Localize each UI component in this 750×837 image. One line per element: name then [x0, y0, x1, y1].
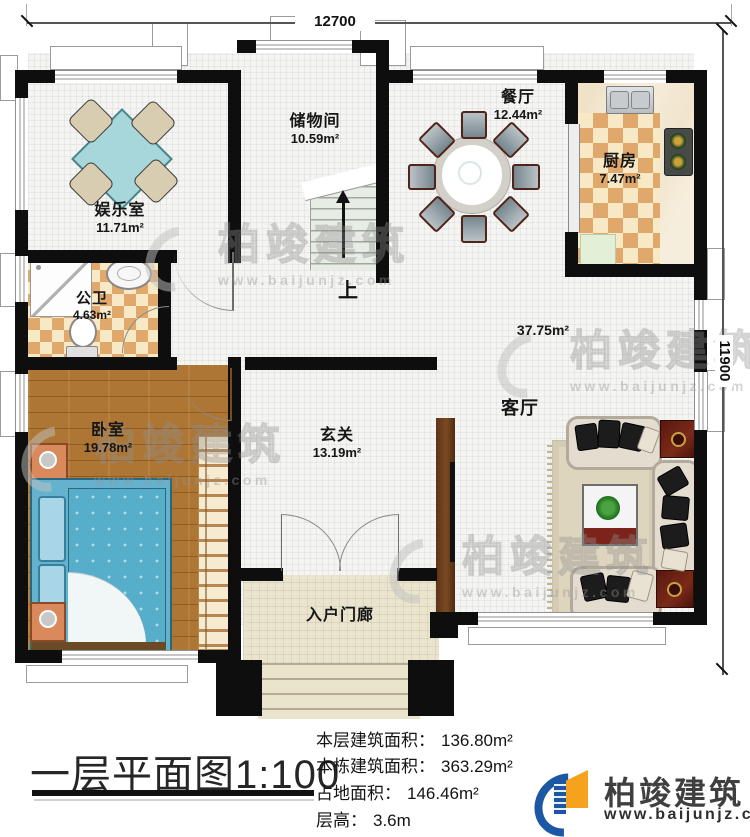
sofa-cushion — [660, 548, 688, 572]
room-area: 37.75m² — [498, 322, 588, 339]
window-sill — [468, 627, 666, 645]
stair-arrow-stem — [342, 202, 345, 258]
wall-segment — [397, 568, 437, 581]
bed-frame — [32, 642, 166, 650]
porch-pillar — [216, 660, 262, 716]
title-underline — [32, 790, 314, 796]
room-label-entertainment: 娱乐室 11.71m² — [60, 201, 180, 236]
dimension-line-top — [27, 22, 732, 24]
info-floor-height: 层高：3.6m — [316, 806, 411, 831]
window — [694, 300, 707, 330]
sofa-cushion — [574, 423, 599, 452]
room-label-bathroom: 公卫 4.63m² — [50, 290, 134, 322]
room-label-living: 客厅 — [478, 398, 562, 420]
room-name: 卧室 — [48, 421, 168, 440]
pillow — [38, 496, 66, 562]
wall-segment — [15, 250, 177, 263]
floor-plan-canvas: 娱乐室 11.71m² 储物间 10.59m² 餐厅 12.44m² 厨房 7.… — [0, 0, 750, 837]
room-label-foyer: 玄关 13.19m² — [277, 426, 397, 461]
room-name: 入户门廊 — [285, 606, 395, 625]
wall-segment — [245, 357, 437, 370]
dining-chair — [512, 164, 540, 190]
window — [604, 70, 666, 83]
info-value: 136.80m² — [441, 731, 513, 750]
side-table — [656, 570, 694, 608]
info-label: 本层建筑面积： — [316, 731, 435, 750]
window-sill — [26, 665, 188, 683]
window — [694, 372, 707, 430]
wall-segment — [15, 357, 177, 370]
title-underline-shadow — [34, 799, 314, 801]
room-area: 7.47m² — [578, 171, 662, 187]
window — [413, 70, 537, 83]
room-label-porch: 入户门廊 — [285, 606, 395, 625]
room-name: 储物间 — [255, 112, 375, 131]
wall-segment — [568, 264, 707, 277]
window — [15, 374, 28, 432]
kitchen-cabinet — [580, 234, 616, 266]
room-area: 13.19m² — [277, 445, 397, 461]
window — [15, 98, 28, 210]
room-name: 公卫 — [50, 290, 134, 308]
room-label-kitchen: 厨房 7.47m² — [578, 152, 662, 187]
brand-logo-building-blue — [554, 780, 566, 814]
dimension-tick — [21, 15, 34, 28]
window-sill — [50, 46, 182, 70]
window — [15, 256, 28, 302]
room-name: 娱乐室 — [60, 201, 180, 220]
stove — [664, 128, 693, 176]
stairs-up-label: 上 — [338, 274, 358, 303]
window — [55, 70, 177, 83]
room-label-dining: 餐厅 12.44m² — [458, 88, 578, 123]
info-value: 3.6m — [373, 811, 411, 830]
info-building-area: 本栋建筑面积：363.29m² — [316, 752, 513, 777]
wall-segment — [694, 83, 707, 625]
room-area: 4.63m² — [50, 308, 134, 322]
porch-pillar — [408, 660, 454, 716]
sofa-cushion — [661, 495, 690, 521]
window-sill — [410, 46, 544, 70]
wall-segment — [376, 53, 389, 283]
room-label-bedroom: 卧室 19.78m² — [48, 421, 168, 456]
window — [62, 650, 198, 663]
dimension-label-top: 12700 — [295, 13, 375, 31]
room-area: 10.59m² — [255, 131, 375, 147]
tv — [450, 462, 455, 562]
info-floor-area: 本层建筑面积：136.80m² — [316, 726, 513, 751]
room-name: 客厅 — [478, 398, 562, 420]
room-label-storage: 储物间 10.59m² — [255, 112, 375, 147]
info-label: 占地面积： — [316, 784, 401, 803]
room-area: 11.71m² — [60, 220, 180, 236]
info-value: 363.29m² — [441, 757, 513, 776]
room-name: 餐厅 — [458, 88, 578, 107]
room-area: 19.78m² — [48, 440, 168, 456]
porch-steps — [258, 663, 420, 719]
coffee-table-plant — [596, 496, 620, 520]
stair-arrow-head — [336, 190, 350, 203]
window — [256, 40, 352, 53]
room-name: 玄关 — [277, 426, 397, 445]
window — [478, 612, 653, 625]
side-table — [660, 420, 696, 458]
nightstand — [30, 602, 66, 642]
living-area-label: 37.75m² — [498, 322, 588, 339]
room-name: 厨房 — [578, 152, 662, 171]
brand-website: www.baijunjz.com — [604, 806, 750, 824]
wall-segment — [228, 70, 241, 263]
wall-segment — [565, 232, 578, 277]
dining-chair — [461, 215, 487, 243]
wall-segment — [430, 612, 458, 638]
info-footprint-area: 占地面积：146.46m² — [316, 779, 479, 804]
info-label: 本栋建筑面积： — [316, 757, 435, 776]
info-value: 146.46m² — [407, 784, 479, 803]
kitchen-sink — [606, 86, 654, 114]
info-label: 层高： — [316, 811, 367, 830]
room-area: 12.44m² — [458, 107, 578, 123]
dimension-label-right: 11900 — [715, 335, 733, 387]
sofa-cushion — [659, 522, 689, 550]
dining-chair — [408, 164, 436, 190]
